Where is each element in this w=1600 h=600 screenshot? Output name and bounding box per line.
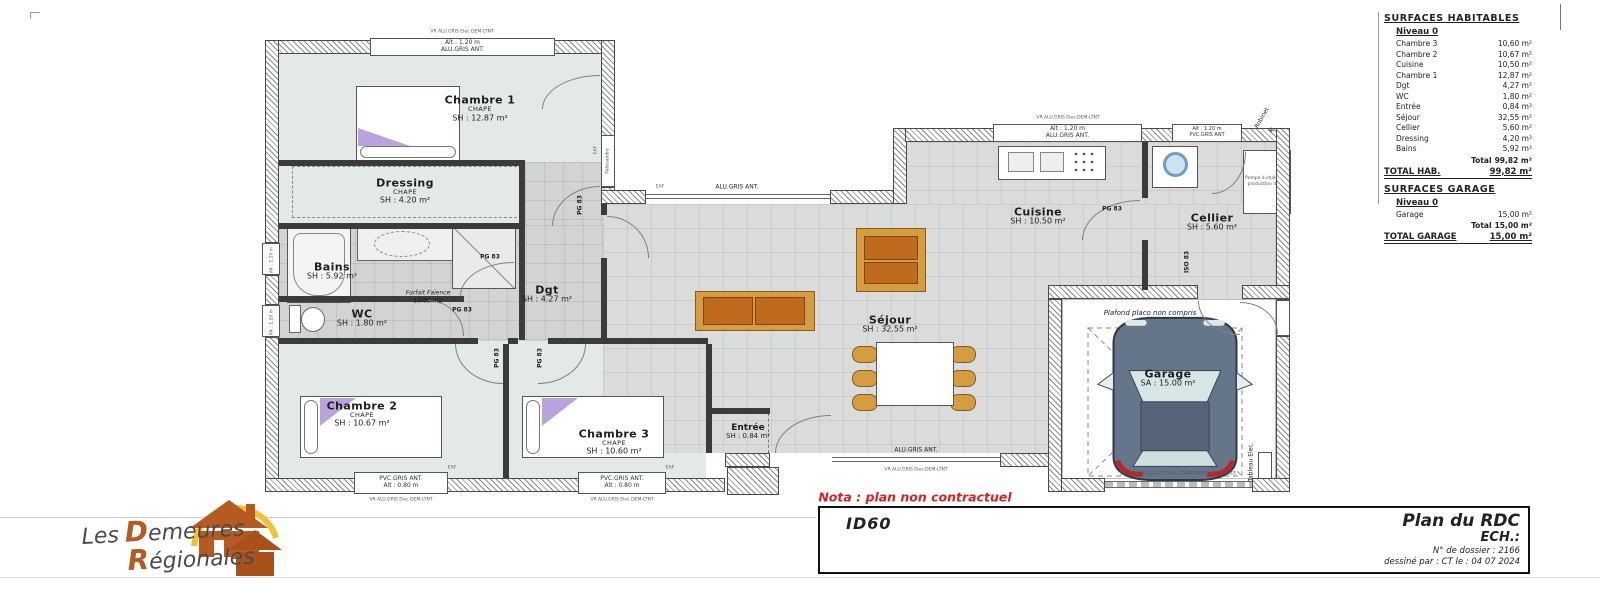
surfaces-total-row: Total99,82 m² — [1384, 155, 1532, 166]
surface-room: WC — [1396, 92, 1409, 103]
total-label: Total — [1471, 155, 1492, 166]
partition — [279, 160, 525, 166]
dining-chair — [852, 394, 878, 411]
window-vr-label: VR ALU.GRIS Elec DEM-LTNT — [430, 30, 493, 35]
company-logo: LesDemeures Régionales — [78, 492, 292, 582]
bed-chambre3-pillow — [526, 400, 540, 454]
surfaces-garage-title: SURFACES GARAGE — [1384, 184, 1532, 195]
surfaces-garage-total-row: Total15,00 m² — [1384, 220, 1532, 231]
room-area-sejour: SH : 32.55 m² — [862, 325, 917, 334]
total-hab-label: TOTAL HAB. — [1384, 166, 1441, 178]
surface-room: Chambre 2 — [1396, 50, 1437, 61]
window-vr-label: VR ALU.GRIS Elec DEM-LTNT — [884, 468, 947, 473]
drawn-by: dessiné par : CT le : 04 07 2024 — [1384, 557, 1520, 567]
door-label-pg83: PG 83 — [1102, 206, 1122, 213]
robinet-cross-icon: + — [1267, 126, 1275, 136]
door-label-pg83: PG 83 — [480, 254, 500, 261]
surface-room: Bains — [1396, 144, 1417, 155]
wall-segment — [1048, 299, 1062, 492]
wall-segment — [657, 478, 725, 492]
window-vr-label: VR ALU.GRIS Elec DEM-LTNT — [590, 498, 653, 503]
wall-segment — [1242, 285, 1290, 299]
surface-row: Bains5,92 m² — [1384, 144, 1532, 155]
model-id: ID60 — [846, 514, 892, 533]
room-area-dressing: SH : 4.20 m² — [380, 196, 430, 205]
window-alt-label: Alt : 0.80 m — [355, 483, 447, 490]
surface-row: Entrée0,84 m² — [1384, 102, 1532, 113]
window-eaf-label: EAF — [656, 185, 665, 190]
surface-value: 32,55 m² — [1498, 113, 1532, 124]
window-chambre3: PVC.GRIS ANT. Alt : 0.80 m — [578, 472, 666, 494]
wall-segment — [1276, 336, 1290, 492]
note-forfait-faience: Forfait Faïence — [406, 290, 451, 297]
front-door-label: Palissandre — [606, 148, 611, 173]
partition — [601, 258, 607, 338]
window-alt-label: Alt : 1.20 m — [269, 247, 274, 273]
partition — [706, 344, 712, 453]
surface-row: Cuisine10,50 m² — [1384, 60, 1532, 71]
partition — [601, 204, 607, 215]
toilet-bowl — [301, 307, 325, 332]
surfaces-panel-divider — [1378, 12, 1379, 204]
wall-segment — [1048, 285, 1198, 299]
plan-scale: ECH.: — [1481, 530, 1520, 545]
window-type-label: ALU.GRIS ANT. — [715, 184, 758, 191]
dossier-number: N° de dossier : 2166 — [1433, 546, 1520, 556]
surface-room: Cellier — [1396, 123, 1420, 134]
washing-machine-drum — [1163, 152, 1188, 177]
window-type-label: PVC.GRIS ANT — [1173, 133, 1241, 139]
window-vr-label: VR ALU.GRIS Elec DEM-LTNT — [1036, 116, 1099, 121]
window-sejour-top — [646, 194, 830, 199]
total-value: 15,00 m² — [1495, 220, 1532, 231]
kitchen-sink — [1040, 152, 1064, 172]
window-cuisine: Alt : 1.20 m ALU.GRIS ANT. — [993, 124, 1142, 142]
surface-room: Dgt — [1396, 81, 1409, 92]
room-area-cellier: SH : 5.60 m² — [1187, 223, 1237, 232]
entree-dashed-boundary — [768, 408, 769, 453]
sofa-horizontal-cushion — [703, 297, 753, 325]
dining-chair — [852, 346, 878, 363]
note-forfait-faience-area: 10.00 m2 — [414, 298, 443, 305]
surface-value: 15,00 m² — [1498, 210, 1532, 221]
door-label-pg83: PG 83 — [452, 307, 472, 314]
sofa-horizontal-cushion — [755, 297, 805, 325]
surface-row: Chambre 310,60 m² — [1384, 39, 1532, 50]
partition — [279, 338, 478, 344]
title-block: ID60 Plan du RDC ECH.: N° de dossier : 2… — [818, 506, 1530, 574]
surface-room: Chambre 1 — [1396, 71, 1437, 82]
window-type-label: ALU.GRIS ANT. — [994, 133, 1141, 140]
wall-segment — [265, 40, 372, 54]
surface-row: Dressing4,20 m² — [1384, 134, 1532, 145]
window-type-label: ALU.GRIS ANT. — [894, 447, 937, 454]
door-label-iso83: ISO 83 — [1184, 251, 1191, 273]
surfaces-title: SURFACES HABITABLES — [1384, 13, 1532, 24]
nota-warning: Nota : plan non contractuel — [818, 490, 1011, 505]
room-area-wc: SH : 1.80 m² — [337, 319, 387, 328]
floor-plan-page: Pompe à chaleur et production d'ECS — [0, 0, 1600, 600]
window-alt-label: Alt : 0.80 m — [579, 483, 665, 490]
wall-segment — [1252, 478, 1290, 492]
room-sub-chambre1: CHAPE — [468, 105, 492, 113]
total-value: 99,82 m² — [1495, 155, 1532, 166]
door-label-pg83: PG 83 — [537, 348, 544, 368]
partition — [279, 223, 519, 229]
partition — [503, 344, 509, 478]
surface-row: Garage15,00 m² — [1384, 210, 1532, 221]
surface-row: Séjour32,55 m² — [1384, 113, 1532, 124]
partition — [1142, 142, 1148, 198]
surface-room: Dressing — [1396, 134, 1429, 145]
window-eaf-label: EAF — [666, 466, 675, 471]
wall-segment — [601, 40, 615, 137]
surface-row: Chambre 112,87 m² — [1384, 71, 1532, 82]
wall-segment — [905, 128, 995, 142]
surface-value: 4,20 m² — [1503, 134, 1532, 145]
room-area-chambre3: SH : 10.60 m² — [586, 447, 641, 456]
window-type-label: ALU.GRIS ANT. — [371, 47, 554, 54]
bed-chambre1-pillow — [360, 146, 456, 158]
surface-value: 10,67 m² — [1498, 50, 1532, 61]
surfaces-total-hab-row: TOTAL HAB.99,82 m² — [1384, 166, 1532, 179]
window-vr-label: VR ALU.GRIS Elec DEM-LTNT — [369, 498, 432, 503]
dining-table — [876, 342, 954, 406]
window-sejour-bottom — [832, 457, 1000, 462]
corner-mark — [30, 12, 40, 13]
window-chambre1: Alt : 1.20 m ALU.GRIS ANT. — [370, 38, 555, 56]
wall-segment — [1140, 128, 1175, 142]
room-area-dgt: SH : 4.27 m² — [522, 295, 572, 304]
wall-segment — [601, 190, 646, 204]
surface-row: Cellier5,60 m² — [1384, 123, 1532, 134]
surface-room: Cuisine — [1396, 60, 1423, 71]
surface-value: 5,92 m² — [1503, 144, 1532, 155]
note-tableau-elec: Tableau Elec. — [1248, 442, 1255, 481]
porch-steps — [727, 467, 779, 495]
surface-value: 1,80 m² — [1503, 92, 1532, 103]
surface-value: 10,60 m² — [1498, 39, 1532, 50]
total-garage-value: 15,00 m² — [1490, 231, 1532, 243]
total-label: Total — [1471, 220, 1492, 231]
surface-row: WC1,80 m² — [1384, 92, 1532, 103]
sofa-square-cushion — [864, 262, 918, 284]
room-area-bains: SH : 5.92 m² — [307, 272, 357, 281]
door-label-pg83: PG 83 — [577, 195, 584, 215]
surface-value: 12,87 m² — [1498, 71, 1532, 82]
surface-room: Chambre 3 — [1396, 39, 1437, 50]
partition — [519, 160, 525, 340]
surface-value: 0,84 m² — [1503, 102, 1532, 113]
surface-row: Chambre 210,67 m² — [1384, 50, 1532, 61]
sofa-square-cushion — [864, 236, 918, 260]
room-area-cuisine: SH : 10.50 m² — [1010, 217, 1065, 226]
garage-side-door — [1276, 300, 1290, 336]
room-area-entree: SH : 0.84 m² — [726, 432, 770, 440]
wall-segment — [265, 478, 362, 492]
door-label-pg83: PG 83 — [494, 348, 501, 368]
wall-segment — [1276, 128, 1290, 300]
garage-door — [1105, 481, 1252, 488]
wall-segment — [1060, 478, 1105, 492]
window-bains-side: Alt : 1.20 m — [262, 243, 280, 275]
surfaces-level: Niveau 0 — [1396, 27, 1532, 37]
bed-chambre2-pillow — [304, 400, 318, 454]
partition — [508, 338, 518, 344]
partition — [1142, 240, 1148, 290]
surfaces-garage-level: Niveau 0 — [1396, 198, 1532, 208]
toilet-tank — [289, 305, 301, 333]
surface-room: Séjour — [1396, 113, 1420, 124]
window-cellier: Alt : 1.20 m PVC.GRIS ANT — [1172, 124, 1242, 142]
kitchen-sink — [1008, 152, 1034, 172]
wall-segment — [265, 275, 279, 305]
surfaces-total-garage-row: TOTAL GARAGE15,00 m² — [1384, 231, 1532, 244]
window-wc-side: Alt : 1.20 m — [262, 305, 280, 337]
surface-row: Dgt4,27 m² — [1384, 81, 1532, 92]
surface-value: 5,60 m² — [1503, 123, 1532, 134]
garage-door-note: SECTIONNELLE AVEC PRE-EQUIPEMENT MOTORIS… — [1120, 472, 1236, 477]
window-eaf-label: EAF — [594, 146, 599, 155]
total-hab-value: 99,82 m² — [1490, 166, 1532, 178]
corner-mark — [30, 12, 31, 19]
room-area-garage: SA : 15.00 m² — [1141, 379, 1196, 388]
dining-chair — [852, 370, 878, 387]
wall-segment — [265, 40, 279, 243]
total-garage-label: TOTAL GARAGE — [1384, 231, 1457, 243]
room-area-chambre2: SH : 10.67 m² — [334, 419, 389, 428]
room-area-chambre1: SH : 12.87 m² — [452, 114, 507, 123]
car-top-view — [1092, 312, 1258, 482]
surface-room: Garage — [1396, 210, 1423, 221]
vanity-basin — [374, 231, 430, 257]
note-plafond-placo: Plafond placo non compris — [1104, 309, 1197, 317]
surface-value: 4,27 m² — [1503, 81, 1532, 92]
surface-value: 10,50 m² — [1498, 60, 1532, 71]
wall-segment — [725, 453, 770, 467]
kitchen-hob — [1072, 150, 1098, 174]
wall-segment — [265, 337, 279, 492]
window-alt-label: Alt : 1.20 m — [269, 309, 274, 335]
window-eaf-label: EAF — [448, 466, 457, 471]
surfaces-panel: SURFACES HABITABLES Niveau 0 Chambre 310… — [1384, 13, 1532, 244]
surface-room: Entrée — [1396, 102, 1421, 113]
window-chambre2: PVC.GRIS ANT. Alt : 0.80 m — [354, 472, 448, 494]
corner-mark — [1560, 4, 1561, 30]
wall-segment — [440, 478, 585, 492]
plan-title: Plan du RDC — [1402, 511, 1520, 531]
partition — [712, 408, 770, 414]
